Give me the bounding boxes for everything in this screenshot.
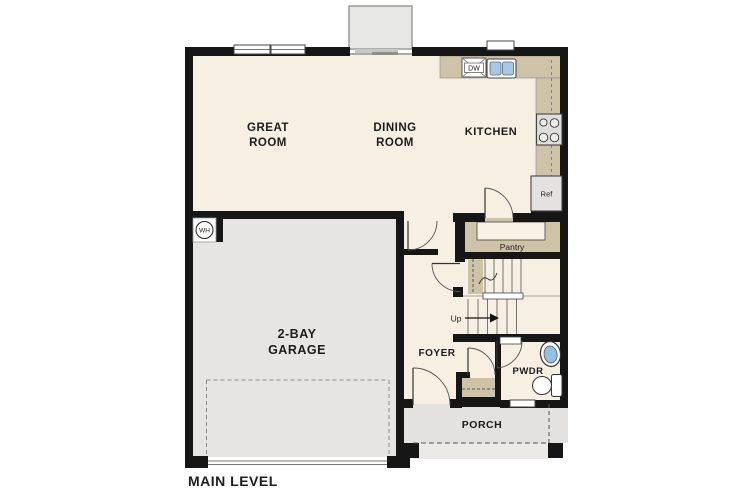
pantry-shelf [477, 222, 545, 240]
water-heater-label: WH [199, 228, 210, 235]
great-room-label-line2: ROOM [249, 137, 287, 149]
wall-wh-stub [216, 218, 223, 242]
stairs-up-label: Up [451, 314, 462, 324]
garage-door-opening [208, 457, 387, 468]
bay-window-bumpout [349, 6, 412, 49]
plan-title: MAIN LEVEL [188, 473, 278, 489]
refrigerator-icon: Ref [531, 176, 562, 211]
foyer-closet-floor [462, 378, 495, 398]
porch-post-right [548, 443, 563, 458]
garage-label-line1: 2-BAY [278, 327, 317, 341]
dishwasher-icon: DW [462, 58, 486, 77]
wall-kitchen-south-left [453, 213, 485, 222]
wall-foyer-south-left [396, 399, 413, 408]
floorplan-drawing: DW Ref WH [0, 0, 750, 500]
porch-window [510, 400, 535, 407]
pantry-label: Pantry [500, 242, 525, 252]
wall-garage-corner-left [185, 456, 208, 468]
dining-room-label-line2: ROOM [376, 137, 414, 149]
kitchen-label: KITCHEN [465, 126, 517, 138]
porch-step [413, 443, 548, 459]
wall-stair-stub [453, 287, 463, 297]
refrigerator-label: Ref [541, 190, 554, 199]
great-room-label-line1: GREAT [247, 122, 289, 134]
stove-icon [537, 114, 563, 145]
wall-pantry-south [455, 252, 568, 259]
wall-right [560, 47, 568, 408]
wall-garage-right [396, 211, 404, 468]
wall-left [185, 47, 193, 468]
stair-half-wall [468, 258, 483, 294]
dining-room-label-line1: DINING [373, 122, 416, 134]
porch-label: PORCH [462, 419, 502, 431]
bay-window-sill-dark [372, 52, 398, 55]
toilet-icon [533, 375, 563, 397]
kitchen-sink-icon [487, 59, 516, 78]
kitchen-sink-window [487, 41, 514, 50]
wall-closet-south [456, 397, 500, 407]
dishwasher-label: DW [468, 66, 480, 73]
water-heater-icon: WH [193, 218, 216, 242]
foyer-label: FOYER [419, 348, 456, 359]
pwdr-door-threshold [500, 337, 521, 344]
wall-greatroom-garage [185, 211, 404, 219]
porch-post-left [404, 443, 419, 458]
wall-pwdr-west [495, 334, 501, 407]
garage-label-line2: GARAGE [268, 343, 326, 357]
floorplan-page: DW Ref WH [0, 0, 750, 500]
stair-nosing-bar [483, 293, 523, 299]
pwdr-label: PWDR [512, 366, 543, 377]
wall-foyer-south-right [450, 399, 462, 408]
